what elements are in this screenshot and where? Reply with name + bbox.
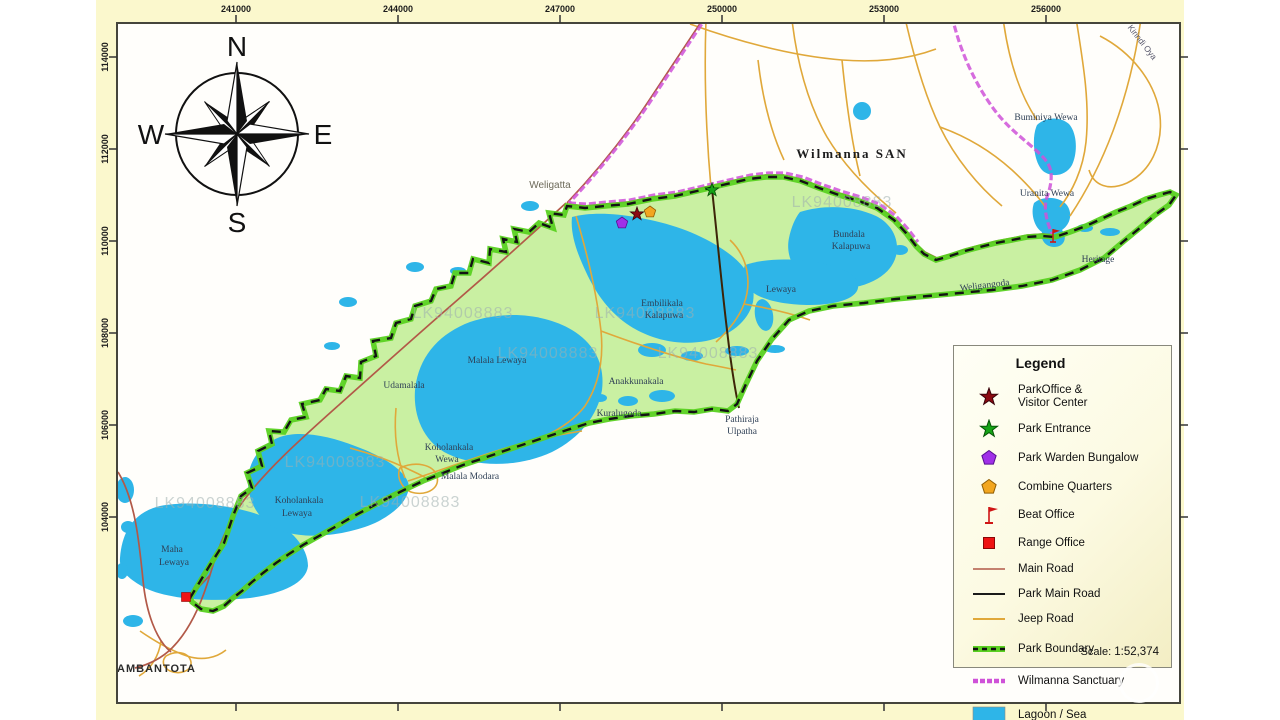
legend-item-label: Main Road (1018, 563, 1074, 576)
compass-north-label: N (227, 31, 247, 62)
axis-label-left: 108000 (100, 318, 110, 348)
place-label: Malala Modara (441, 472, 500, 482)
star-green-icon (970, 419, 1008, 439)
range-office-marker (182, 593, 191, 602)
place-label: Kuralugoda (597, 409, 643, 419)
legend-item-label: Lagoon / Sea (1018, 709, 1086, 720)
compass-south-label: S (228, 207, 247, 238)
compass-west-label: W (138, 119, 165, 150)
star-red-icon (970, 387, 1008, 407)
place-label: Anakkunakala (609, 377, 665, 387)
legend-item-park-main-road: Park Main Road (954, 584, 1171, 604)
legend-scale: Scale: 1:52,374 (1081, 646, 1159, 658)
legend-item-range-office: Range Office (954, 533, 1171, 553)
place-label: Udamalala (383, 381, 425, 391)
swatch-lagoon-icon (970, 705, 1008, 720)
stock-watermark-text: LK94008883 (792, 194, 893, 211)
legend-item-park-warden-bungalow: Park Warden Bungalow (954, 448, 1171, 468)
line-jeep-road-icon (970, 609, 1008, 629)
place-label: Uranita Wewa (1020, 189, 1075, 199)
place-label: Buminiya Wewa (1014, 113, 1078, 123)
place-label: Pathiraja (725, 415, 760, 425)
flag-red-icon (970, 505, 1008, 525)
legend-item-label: Park Entrance (1018, 423, 1091, 436)
axis-label-top: 253000 (869, 4, 899, 14)
place-label: Kalapuwa (645, 311, 684, 321)
axis-label-top: 244000 (383, 4, 413, 14)
line-park-main-road-icon (970, 584, 1008, 604)
compass-east-label: E (314, 119, 333, 150)
legend-item-label: Beat Office (1018, 509, 1075, 522)
legend-item-parkoffice: ParkOffice &Visitor Center (954, 384, 1171, 410)
pentagon-purple-icon (970, 448, 1008, 468)
scale-value: 1:52,374 (1114, 646, 1159, 658)
place-label: Malala Lewaya (468, 356, 528, 366)
photo-watermark-circle (1119, 663, 1159, 703)
legend-item-label: Range Office (1018, 537, 1085, 550)
axis-label-top: 247000 (545, 4, 575, 14)
legend-item-label: ParkOffice &Visitor Center (1018, 384, 1087, 410)
legend-item-jeep-road: Jeep Road (954, 609, 1171, 629)
legend-item-label: Park Warden Bungalow (1018, 452, 1138, 465)
place-label: Bundala (833, 230, 865, 240)
map-page: LK94008883LK94008883LK94008883LK94008883… (0, 0, 1280, 720)
place-label: Koholankala (425, 443, 474, 453)
legend-item-beat-office: Beat Office (954, 505, 1171, 525)
square-red-icon (970, 533, 1008, 553)
stock-watermark-text: LK94008883 (658, 345, 759, 362)
place-label: Weligatta (529, 180, 571, 191)
legend-item-lagoon-sea: Lagoon / Sea (954, 705, 1171, 720)
legend-item-label: Combine Quarters (1018, 481, 1112, 494)
pentagon-orange-icon (970, 477, 1008, 497)
stock-watermark-text: LK94008883 (413, 305, 514, 322)
legend-item-label: Jeep Road (1018, 613, 1074, 626)
place-label: Ulpatha (727, 427, 758, 437)
axis-label-left: 114000 (100, 42, 110, 72)
place-label: Wilmanna SAN (796, 146, 908, 161)
line-main-road-icon (970, 559, 1008, 579)
legend-item-main-road: Main Road (954, 559, 1171, 579)
scale-label: Scale: (1081, 646, 1112, 658)
axis-label-left: 110000 (100, 226, 110, 256)
place-label: Heritage (1082, 255, 1115, 265)
axis-label-top: 250000 (707, 4, 737, 14)
legend: Legend ParkOffice &Visitor CenterPark En… (953, 345, 1172, 668)
stock-watermark-text: LK94008883 (360, 494, 461, 511)
axis-label-left: 106000 (100, 410, 110, 440)
place-label: Lewaya (159, 558, 190, 568)
legend-item-park-entrance: Park Entrance (954, 419, 1171, 439)
stock-watermark-text: LK94008883 (285, 454, 386, 471)
axis-label-left: 112000 (100, 134, 110, 164)
stock-watermark-text: LK94008883 (155, 495, 256, 512)
place-label: Lewaya (766, 285, 797, 295)
axis-label-top: 256000 (1031, 4, 1061, 14)
lagoon-buminiya-wewa (1034, 118, 1076, 175)
place-label: Koholankala (275, 496, 324, 506)
place-label: Lewaya (282, 509, 313, 519)
legend-item-combine-quarters: Combine Quarters (954, 477, 1171, 497)
place-label: Kalapuwa (832, 242, 871, 252)
legend-title: Legend (954, 355, 1171, 371)
axis-label-top: 241000 (221, 4, 251, 14)
legend-item-label: Wilmanna Sanctuary (1018, 675, 1124, 688)
legend-item-label: Park Main Road (1018, 588, 1100, 601)
place-label: Embilikala (641, 299, 683, 309)
place-label: HAMBANTOTA (108, 663, 196, 675)
place-label: Maha (161, 545, 183, 555)
line-park-boundary-icon (970, 639, 1008, 659)
axis-label-left: 104000 (100, 502, 110, 532)
place-label: Wewa (435, 455, 459, 465)
line-wilmanna-icon (970, 671, 1008, 691)
